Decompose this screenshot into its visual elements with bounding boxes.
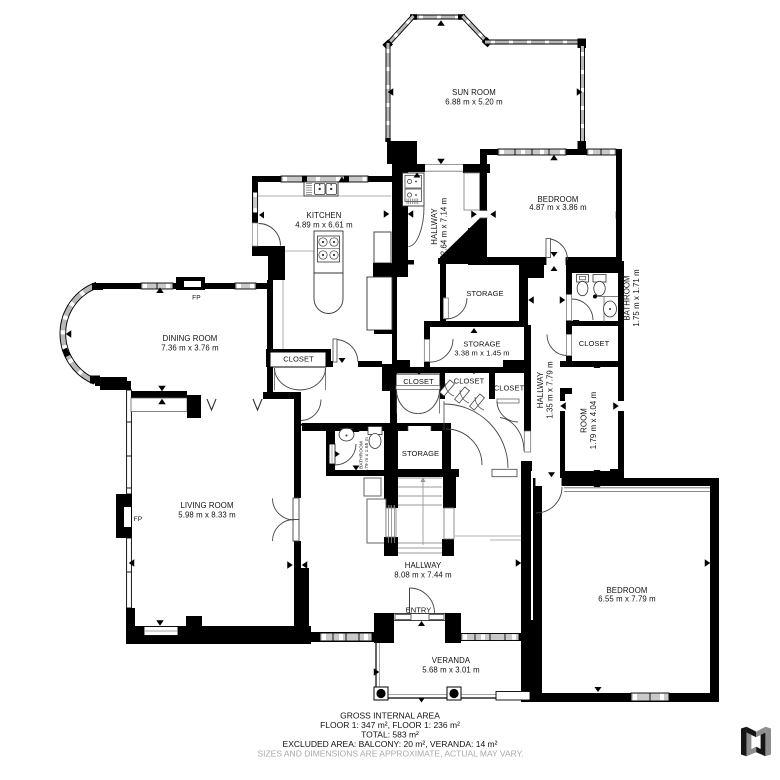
svg-text:FLOOR 1: 347 m², FLOOR 1: 236: FLOOR 1: 347 m², FLOOR 1: 236 m² [320, 720, 460, 730]
svg-text:2.64 m x 7.14 m: 2.64 m x 7.14 m [440, 198, 449, 255]
svg-text:6.55 m x 7.79 m: 6.55 m x 7.79 m [598, 594, 655, 603]
svg-text:3.38 m x 1.45 m: 3.38 m x 1.45 m [454, 348, 509, 357]
svg-text:1.79 m x 4.04 m: 1.79 m x 4.04 m [589, 392, 598, 449]
svg-text:KITCHEN: KITCHEN [307, 211, 342, 220]
svg-text:1.35 m x 7.79 m: 1.35 m x 7.79 m [546, 361, 555, 418]
svg-text:SIZES AND DIMENSIONS ARE APPRO: SIZES AND DIMENSIONS ARE APPROXIMATE, AC… [257, 749, 523, 759]
svg-text:ROOM: ROOM [580, 408, 589, 433]
svg-text:FP: FP [134, 516, 143, 523]
svg-text:FP: FP [192, 295, 201, 302]
svg-text:EXCLUDED AREA: BALCONY: 20 m²,: EXCLUDED AREA: BALCONY: 20 m², VERANDA: … [283, 739, 498, 749]
svg-text:CLOSET: CLOSET [494, 384, 525, 393]
svg-text:BATHROOM: BATHROOM [623, 275, 632, 320]
svg-text:CLOSET: CLOSET [454, 376, 485, 385]
svg-text:ENTRY: ENTRY [406, 605, 432, 614]
svg-text:4.89 m x 6.61 m: 4.89 m x 6.61 m [295, 220, 352, 229]
svg-text:TOTAL: 583 m²: TOTAL: 583 m² [361, 730, 419, 740]
svg-text:VERANDA: VERANDA [432, 656, 471, 665]
svg-text:DINING ROOM: DINING ROOM [163, 334, 218, 343]
svg-text:CLOSET: CLOSET [403, 377, 434, 386]
svg-text:CLOSET: CLOSET [579, 339, 610, 348]
svg-text:7.36 m x 3.76 m: 7.36 m x 3.76 m [161, 343, 218, 352]
svg-text:SUN ROOM: SUN ROOM [452, 88, 496, 97]
svg-text:0.79 m x 1.65 m: 0.79 m x 1.65 m [364, 437, 369, 473]
svg-text:8.08 m x 7.44 m: 8.08 m x 7.44 m [394, 570, 451, 579]
svg-text:1.75 m x 1.71 m: 1.75 m x 1.71 m [632, 269, 641, 326]
svg-text:5.68 m x 3.01 m: 5.68 m x 3.01 m [422, 665, 479, 674]
svg-text:LIVING ROOM: LIVING ROOM [180, 501, 233, 510]
svg-text:STORAGE: STORAGE [466, 289, 503, 298]
svg-text:6.88 m x 5.20 m: 6.88 m x 5.20 m [445, 98, 502, 107]
svg-text:CLOSET: CLOSET [283, 355, 314, 364]
svg-text:BATHROOM: BATHROOM [359, 441, 364, 469]
svg-text:4.87 m x 3.86 m: 4.87 m x 3.86 m [529, 203, 586, 212]
svg-text:HALLWAY: HALLWAY [430, 208, 439, 245]
svg-text:HALLWAY: HALLWAY [405, 561, 442, 570]
svg-text:5.98 m x 8.33 m: 5.98 m x 8.33 m [178, 510, 235, 519]
svg-text:GROSS INTERNAL AREA: GROSS INTERNAL AREA [340, 711, 440, 721]
svg-text:STORAGE: STORAGE [402, 449, 439, 458]
svg-text:HALLWAY: HALLWAY [536, 371, 545, 408]
svg-text:STORAGE: STORAGE [463, 340, 500, 349]
